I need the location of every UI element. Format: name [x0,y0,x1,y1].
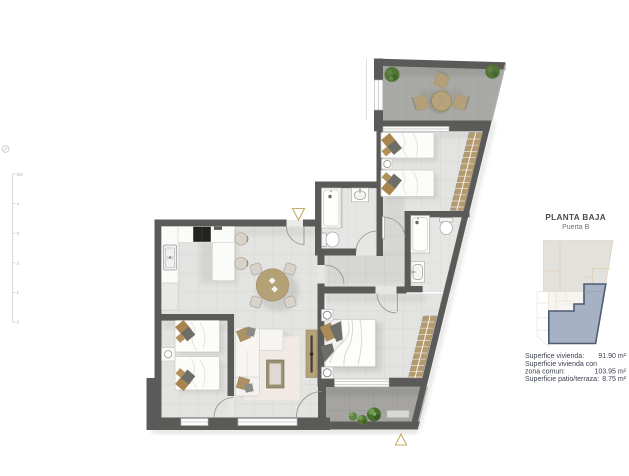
svg-text:Superfice vivienda:: Superfice vivienda: [525,353,584,360]
svg-text:0: 0 [17,320,20,325]
svg-text:8.75 m²: 8.75 m² [602,376,626,383]
svg-text:1: 1 [17,290,20,295]
svg-text:zona comun:: zona comun: [525,369,565,376]
svg-text:103.95 m²: 103.95 m² [594,369,626,376]
svg-text:4: 4 [17,202,20,207]
svg-text:5M: 5M [17,172,24,177]
svg-text:Superficie patio/terraza:: Superficie patio/terraza: [525,376,599,383]
svg-text:3: 3 [17,231,20,236]
svg-text:91.90 m²: 91.90 m² [598,353,626,360]
svg-text:Puerta B: Puerta B [562,224,590,231]
svg-text:Superficie vivienda con: Superficie vivienda con [525,361,597,368]
svg-text:PLANTA BAJA: PLANTA BAJA [545,213,606,222]
svg-text:2: 2 [17,261,20,266]
